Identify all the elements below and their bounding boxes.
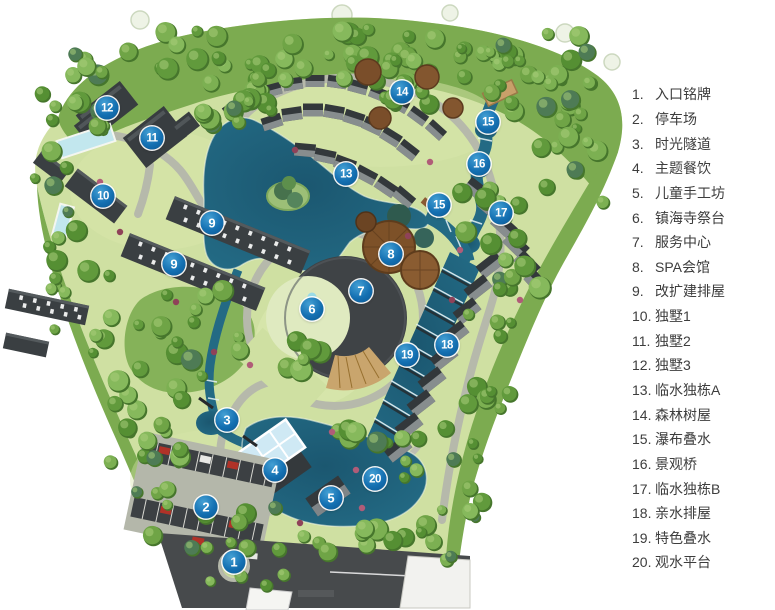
legend-number: 3. [632,136,655,152]
legend-item: 15.瀑布叠水 [632,427,772,452]
legend-number: 9. [632,283,655,299]
legend-item: 20.观水平台 [632,550,772,575]
legend-item: 10.独墅1 [632,304,772,329]
legend-item: 16.景观桥 [632,452,772,477]
legend-label: 独墅1 [655,306,691,326]
legend-label: 临水独栋B [655,479,720,499]
legend-label: 亲水排屋 [655,503,711,523]
site-plan-page: 1234567899101112131415151617181920 1.入口铭… [0,0,775,610]
legend-number: 20. [632,554,655,570]
legend-item: 19.特色叠水 [632,526,772,551]
legend-number: 2. [632,111,655,127]
legend-item: 2.停车场 [632,107,772,132]
legend-number: 13. [632,382,655,398]
legend-label: 特色叠水 [655,528,711,548]
legend-number: 14. [632,407,655,423]
legend: 1.入口铭牌2.停车场3.时光隧道4.主题餐饮5.儿童手工坊6.镇海寺祭台7.服… [632,82,772,575]
legend-item: 7.服务中心 [632,230,772,255]
legend-label: 独墅2 [655,331,691,351]
legend-label: 改扩建排屋 [655,281,725,301]
legend-number: 7. [632,234,655,250]
legend-label: 森林树屋 [655,405,711,425]
legend-label: 独墅3 [655,355,691,375]
legend-item: 1.入口铭牌 [632,82,772,107]
legend-number: 16. [632,456,655,472]
legend-item: 13.临水独栋A [632,378,772,403]
legend-number: 5. [632,185,655,201]
legend-label: 主题餐饮 [655,158,711,178]
legend-label: 临水独栋A [655,380,720,400]
legend-item: 18.亲水排屋 [632,501,772,526]
legend-label: 入口铭牌 [655,84,711,104]
legend-label: 镇海寺祭台 [655,208,725,228]
legend-item: 4.主题餐饮 [632,156,772,181]
legend-label: 儿童手工坊 [655,183,725,203]
legend-number: 17. [632,481,655,497]
legend-item: 12.独墅3 [632,353,772,378]
legend-item: 9.改扩建排屋 [632,279,772,304]
legend-number: 8. [632,259,655,275]
legend-number: 6. [632,210,655,226]
legend-label: 停车场 [655,109,697,129]
legend-item: 6.镇海寺祭台 [632,205,772,230]
legend-label: 观水平台 [655,552,711,572]
legend-number: 11. [632,333,655,349]
legend-label: 服务中心 [655,232,711,252]
legend-label: SPA会馆 [655,257,710,277]
legend-number: 18. [632,505,655,521]
legend-label: 时光隧道 [655,134,711,154]
legend-item: 14.森林树屋 [632,402,772,427]
legend-number: 15. [632,431,655,447]
legend-item: 5.儿童手工坊 [632,181,772,206]
legend-number: 4. [632,160,655,176]
legend-number: 12. [632,357,655,373]
legend-label: 景观桥 [655,454,697,474]
legend-item: 3.时光隧道 [632,131,772,156]
legend-number: 10. [632,308,655,324]
legend-label: 瀑布叠水 [655,429,711,449]
legend-item: 11.独墅2 [632,328,772,353]
legend-item: 8.SPA会馆 [632,254,772,279]
legend-number: 1. [632,86,655,102]
legend-item: 17.临水独栋B [632,476,772,501]
legend-number: 19. [632,530,655,546]
